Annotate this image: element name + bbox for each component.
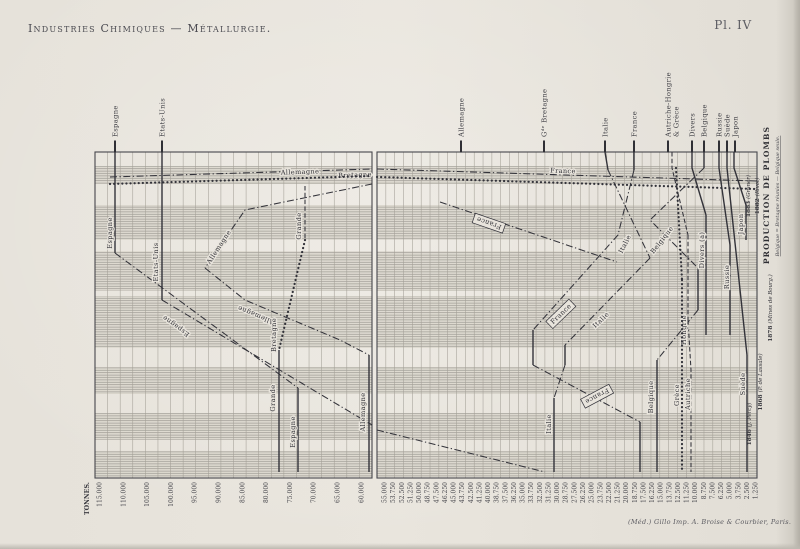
scale-tick-label: 37.500 (502, 482, 509, 503)
scale-tick-label: 85.000 (239, 482, 246, 503)
country-label-belgique: Belgique (700, 104, 708, 137)
scale-tick-label: 23.750 (597, 482, 604, 503)
scale-tick-label: 46.250 (442, 482, 449, 503)
scale-tick-label: 52.500 (399, 482, 406, 503)
scale-tick-label: 17.500 (640, 482, 647, 503)
line-label: Autriche (684, 378, 692, 411)
country-label-sude: Suède (723, 114, 731, 137)
scale-tick-label: 25.000 (589, 482, 596, 503)
scale-tick-label: 41.250 (476, 482, 483, 503)
scale-tick-label: 105.000 (144, 482, 151, 507)
line-label: Japon (737, 213, 745, 235)
scale-tick-label: 70.000 (311, 482, 318, 503)
svg-text:1878 (Mines de Bourg.): 1878 (Mines de Bourg.) (767, 274, 774, 342)
scale-tick-label: 6.250 (718, 482, 725, 499)
scale-tick-label: 90.000 (216, 482, 223, 503)
scale-tick-label: 55.000 (382, 482, 389, 503)
line-label: Russie (723, 265, 731, 289)
margin-year-col-1882: 1882 (Rivot) (754, 178, 761, 215)
chart-plate: EspagneEspagneEspagneEtats-UnisAllemagne… (0, 0, 800, 549)
scale-tick-label: 31.250 (545, 482, 552, 503)
scale-tick-label: 15.000 (658, 482, 665, 503)
line-label: Espagne (289, 416, 297, 448)
scale-tick-label: 48.750 (425, 482, 432, 503)
line-label: Etats-Unis (152, 242, 160, 281)
svg-text:1882 (Rivot): 1882 (Rivot) (754, 178, 761, 215)
scale-tick-label: 2.500 (744, 482, 751, 499)
scan-edge-bottom (0, 543, 800, 549)
line-label: Grande (269, 384, 277, 411)
scale-tick-label: 42.500 (468, 482, 475, 503)
scale-tick-label: 80.000 (263, 482, 270, 503)
engraved-plate-page: Industries Chimiques — Métallurgie. Pl. … (0, 0, 800, 549)
scale-tick-label: 36.250 (511, 482, 518, 503)
country-label-russie: Russie (715, 113, 723, 137)
scale-tick-label: 8.750 (701, 482, 708, 499)
country-label-italie: Italie (601, 117, 609, 137)
scale-tick-label: 27.500 (571, 482, 578, 503)
scale-tick-label: 32.500 (537, 482, 544, 503)
tonnage-scale-labels: TONNES.115.000110.000105.000100.00095.00… (84, 482, 760, 515)
margin-year-col-1883: 1883 (Gruner) (745, 175, 752, 217)
country-label-divers: Divers (688, 113, 696, 137)
printer-imprint: (Méd.) Gillo Imp. A. Broise & Courbier, … (628, 518, 791, 526)
scale-tick-label: 26.250 (580, 482, 587, 503)
scale-tick-label: 43.750 (459, 482, 466, 503)
scale-tick-label: 47.500 (433, 482, 440, 503)
scale-tick-label: 60.000 (358, 482, 365, 503)
scale-tick-label: 3.750 (735, 482, 742, 499)
country-label-autrichehongrie: Autriche-Hongrie (664, 72, 672, 138)
scale-tick-label: 10.000 (692, 482, 699, 503)
line-label: Bretagne (270, 318, 278, 352)
scale-tick-label: 45.000 (451, 482, 458, 503)
margin-chart-title: PRODUCTION DE PLOMBS (762, 126, 771, 264)
line-label: Allemagne (359, 392, 367, 432)
country-label-etatsunis: Etats-Unis (158, 98, 166, 137)
line-label: Grande (295, 212, 303, 239)
margin-year-row-1868: 1868 (P. de Lassale) (757, 353, 764, 410)
line-label: Grèce (673, 384, 681, 406)
scale-tick-label: 50.000 (416, 482, 423, 503)
scale-tick-label: 33.750 (528, 482, 535, 503)
scale-tick-label: 7.500 (709, 482, 716, 499)
line-label: Suède (739, 373, 747, 396)
svg-text:1883 (Gruner): 1883 (Gruner) (745, 175, 752, 217)
line-label: Allemagne (280, 167, 320, 176)
scale-tick-label: 53.750 (390, 482, 397, 503)
scale-tick-label: 115.000 (97, 482, 104, 507)
scale-tick-label: 11.250 (684, 482, 691, 503)
scale-tick-label: 75.000 (287, 482, 294, 503)
scale-tick-label: 110.000 (120, 482, 127, 507)
line-label: Bretagne (338, 170, 372, 179)
margin-year-row-1878: 1878 (Mines de Bourg.) (767, 274, 774, 342)
top-country-labels: EspagneEtats-UnisAllemagneGᵈᵉ BretagneIt… (111, 72, 739, 152)
scale-tick-label: 20.000 (623, 482, 630, 503)
scale-tick-label: 30.000 (554, 482, 561, 503)
scale-tick-label: 95.000 (192, 482, 199, 503)
svg-text:1846 (J. Percy): 1846 (J. Percy) (746, 403, 753, 446)
scale-tick-label: 40.000 (485, 482, 492, 503)
country-label-japon: Japon (731, 116, 739, 138)
country-label-allemagne: Allemagne (457, 98, 465, 138)
scale-tick-label: 16.250 (649, 482, 656, 503)
line-label: Belgique (647, 381, 655, 414)
scale-tick-label: 38.750 (494, 482, 501, 503)
production-de-plombs-chart: EspagneEspagneEspagneEtats-UnisAllemagne… (0, 0, 800, 549)
scale-tick-label: 35.000 (520, 482, 527, 503)
scale-tick-label: 1.250 (753, 482, 760, 499)
scale-tick-label: 100.000 (168, 482, 175, 507)
scale-tick-label: 21.250 (615, 482, 622, 503)
country-label-espagne: Espagne (111, 105, 119, 137)
scale-tick-label: 28.750 (563, 482, 570, 503)
scale-tick-label: 5.000 (727, 482, 734, 499)
scale-tick-label: 12.500 (675, 482, 682, 503)
scan-edge-right (793, 0, 800, 549)
axis-unit-label: TONNES. (84, 482, 91, 515)
scale-tick-label: 51.250 (407, 482, 414, 503)
margin-year-row-1846: 1846 (J. Percy) (746, 403, 753, 446)
country-label-france: France (630, 111, 638, 137)
svg-text:1868 (P. de Lassale): 1868 (P. de Lassale) (757, 353, 764, 410)
line-label: Divers (a) (698, 232, 706, 269)
margin-note: Belgique = Bretagne réunies — Belgique s… (774, 135, 781, 257)
scale-tick-label: 22.500 (606, 482, 613, 503)
scale-tick-label: 13.750 (666, 482, 673, 503)
scale-tick-label: 18.750 (632, 482, 639, 503)
country-label-gbretagne: Gᵈᵉ Bretagne (540, 89, 548, 137)
line-label: Espagne (106, 217, 114, 249)
line-label: Italie (545, 414, 553, 434)
scale-tick-label: 65.000 (335, 482, 342, 503)
country-label-grce: & Grèce (672, 106, 680, 137)
line-label: France (550, 167, 576, 176)
